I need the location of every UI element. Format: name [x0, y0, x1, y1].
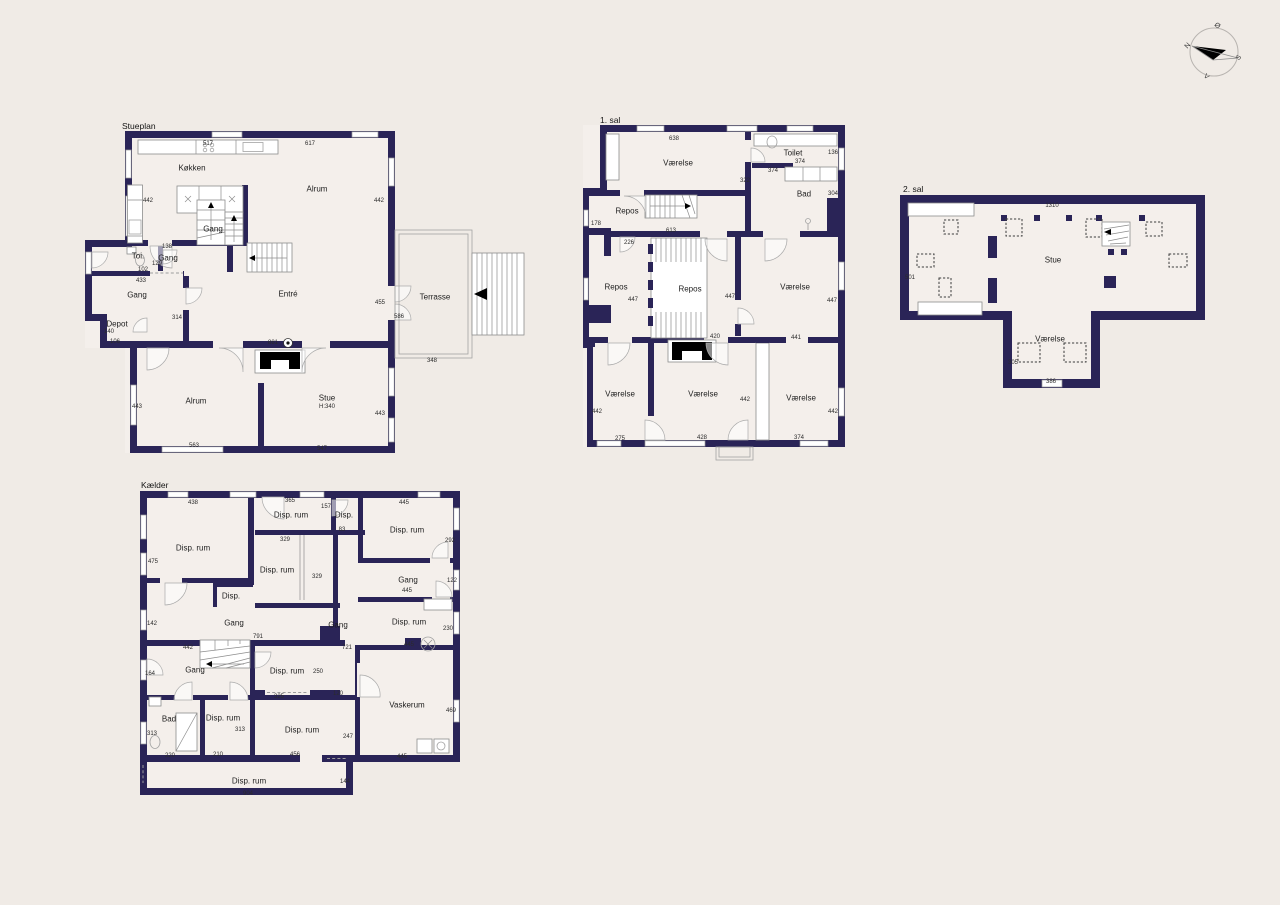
floorplan-drawing: [0, 0, 1280, 905]
basement-plan: [140, 491, 460, 795]
compass-needle: [1192, 46, 1226, 60]
compass-rose: [1190, 28, 1238, 76]
stueplan-plan: [85, 131, 524, 453]
second-floor-plan: [900, 195, 1205, 388]
first-floor-plan: [583, 125, 845, 460]
